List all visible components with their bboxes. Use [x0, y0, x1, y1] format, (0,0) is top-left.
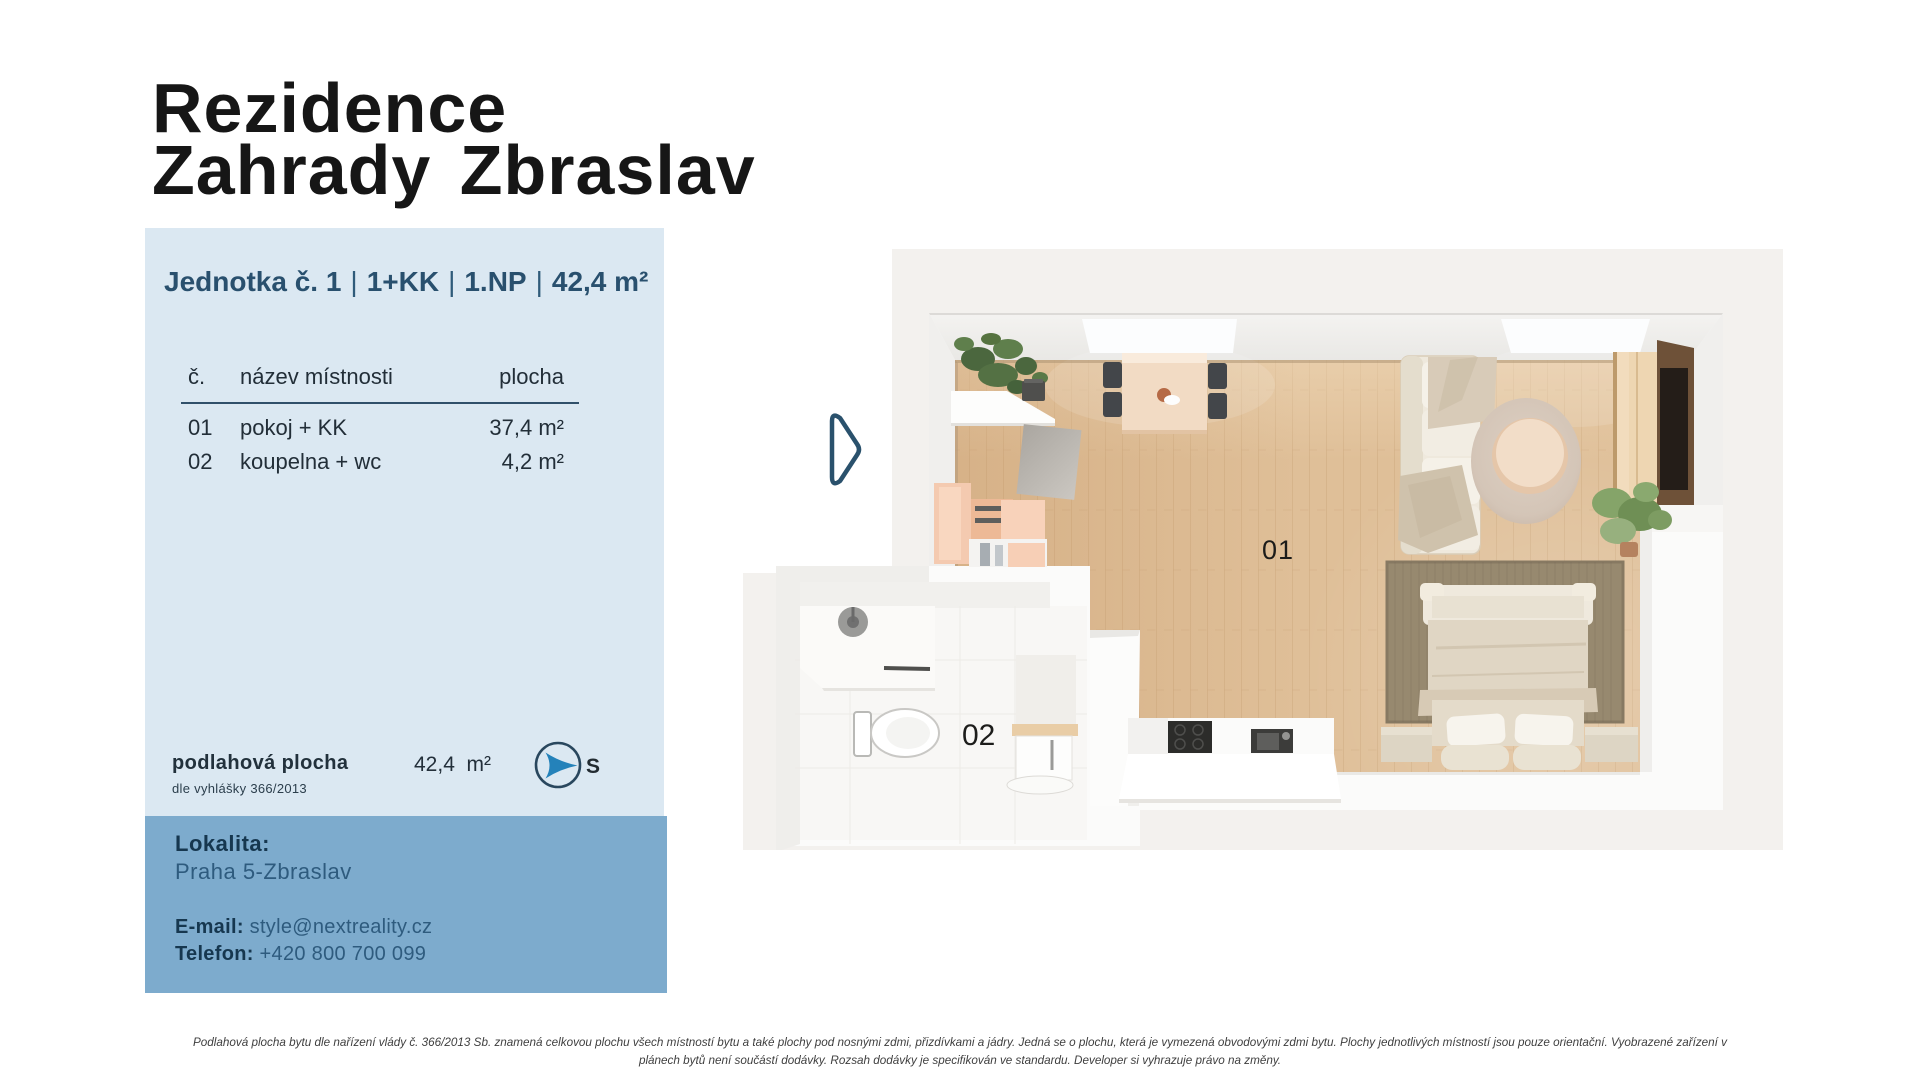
- svg-text:02: 02: [962, 719, 995, 752]
- svg-text:S: S: [586, 755, 600, 778]
- svg-text:01: 01: [1262, 535, 1294, 565]
